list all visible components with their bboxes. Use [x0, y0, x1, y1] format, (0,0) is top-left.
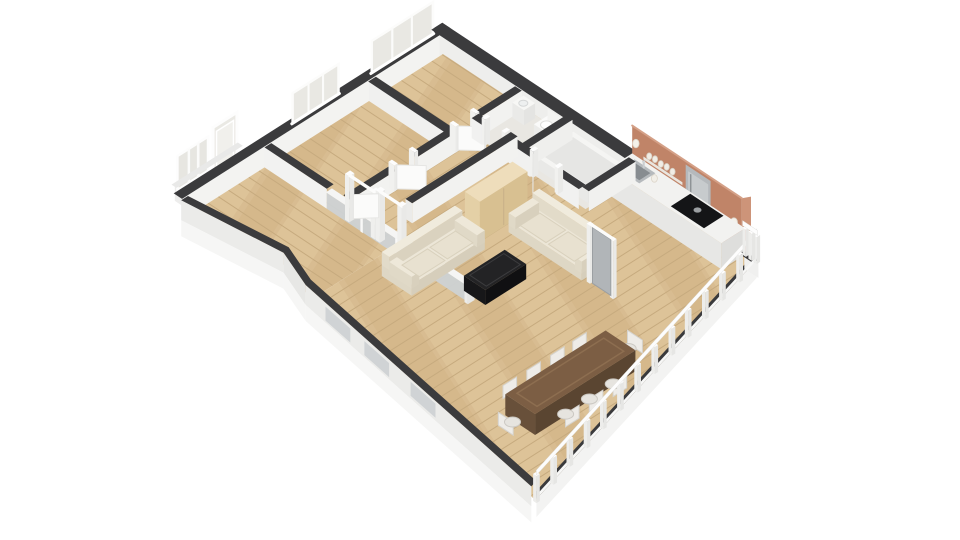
railing-post [638, 363, 641, 392]
railing-post [685, 309, 688, 338]
railing-post [603, 400, 606, 429]
floorplan-canvas [0, 0, 960, 540]
kitchen-wall-jar [633, 139, 639, 147]
railing-post [584, 419, 587, 448]
railing-post [550, 456, 553, 485]
entry-door-frame-post [587, 224, 590, 284]
railing-post [634, 363, 637, 392]
railing-post [702, 290, 705, 319]
window-mullion [308, 82, 310, 113]
railing-post [736, 253, 739, 282]
railing-post [554, 456, 558, 485]
counter-canister [651, 175, 657, 183]
railing-post [752, 232, 755, 261]
cooktop-pot [694, 207, 702, 212]
railing-post [743, 226, 750, 257]
railing-post [536, 474, 539, 503]
railing-post [748, 229, 755, 260]
dining-chair-seat [505, 417, 521, 427]
railing-post [743, 228, 746, 257]
tall-door-frame-post [380, 190, 385, 243]
railing-post [533, 472, 540, 503]
tall-door-frame-post [345, 174, 349, 223]
door-frame-post [555, 166, 558, 194]
entry-door-frame-post [613, 239, 616, 299]
railing-post [651, 345, 654, 374]
sink-faucet-head [642, 160, 645, 162]
railing-post [567, 438, 570, 467]
spice-jar [647, 153, 652, 160]
railing-post [748, 232, 751, 261]
dining-chair-seat [581, 394, 597, 404]
door-frame-post [389, 162, 395, 192]
bedroom-b-door [397, 165, 426, 190]
door-frame-post [533, 149, 538, 178]
spice-jar [652, 156, 657, 163]
railing-post [570, 438, 573, 467]
railing-post [655, 345, 658, 374]
spice-jar [670, 168, 675, 175]
railing-post [669, 327, 672, 356]
railing-post [740, 253, 743, 282]
door-frame-post [485, 117, 490, 146]
floorplan-viewport [0, 0, 960, 540]
railing-post [719, 272, 722, 301]
corridor-door [353, 194, 378, 219]
dining-chair-seat [558, 409, 574, 419]
door-frame-post [450, 123, 456, 153]
railing-post [757, 235, 760, 264]
railing-post [688, 309, 691, 338]
railing-post [705, 290, 708, 319]
railing-post [533, 474, 536, 503]
spice-jar [664, 164, 669, 171]
window-mullion [411, 15, 413, 48]
bathroom-sink-basin [519, 100, 528, 106]
railing-post [587, 419, 590, 448]
railing-post [620, 382, 623, 411]
railing-post [672, 327, 676, 356]
door-frame-post [530, 146, 538, 177]
door-frame-post [558, 165, 563, 194]
door-frame-post [482, 114, 490, 145]
window-mullion [322, 73, 324, 104]
spice-jar [658, 161, 663, 168]
railing-post [722, 272, 725, 301]
window-mullion [391, 27, 393, 60]
door-frame-post [555, 163, 563, 194]
railing-post [736, 251, 743, 282]
